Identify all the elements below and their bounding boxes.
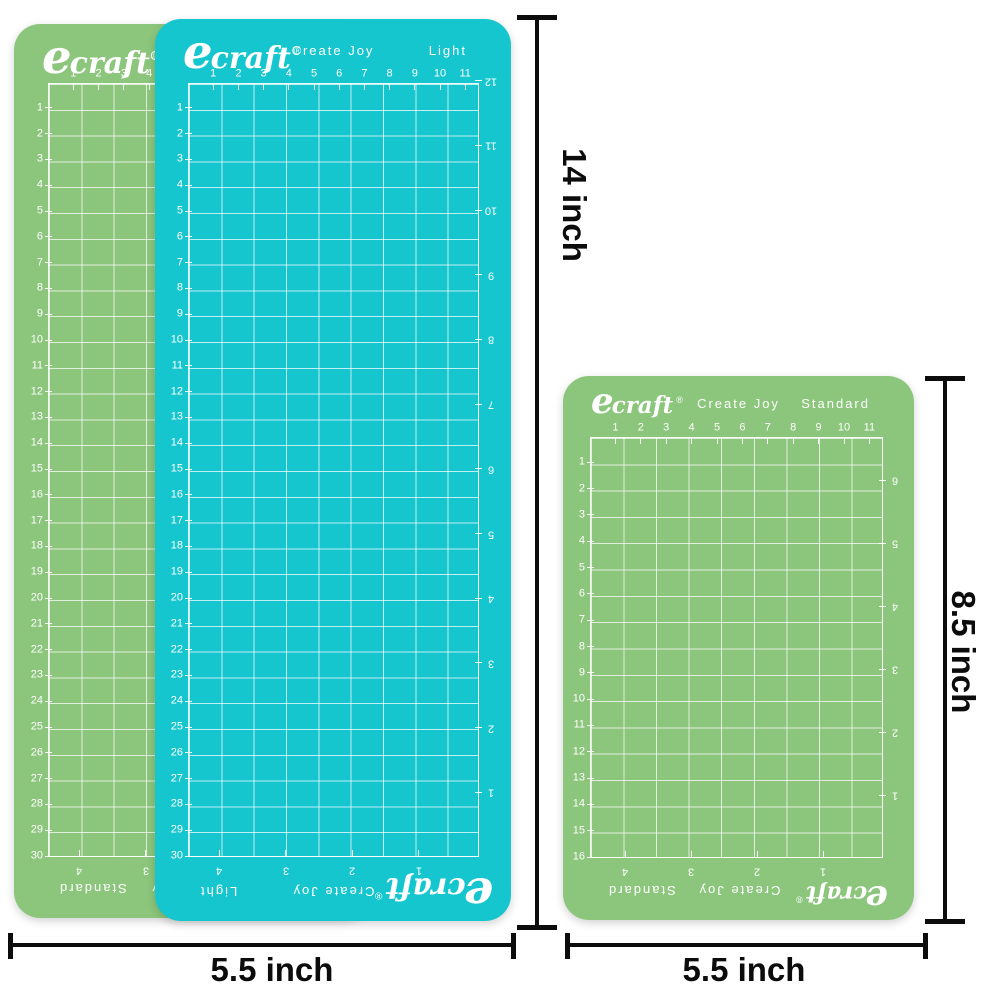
flipped-column-scale-label: 4 (76, 865, 82, 876)
variant-text: Light (429, 43, 467, 58)
dimension-line (567, 943, 927, 947)
row-scale-tick (185, 598, 192, 599)
dimension-cap (923, 933, 928, 959)
flipped-row-scale-label: 2 (488, 722, 494, 733)
column-scale-tick (414, 84, 415, 90)
row-scale-label: 30 (31, 851, 43, 862)
column-scale-tick (717, 438, 718, 444)
row-scale-label: 11 (574, 720, 585, 731)
row-scale-tick (587, 462, 594, 463)
measuring-grid (590, 437, 883, 858)
row-scale-label: 27 (31, 773, 43, 784)
column-scale-tick (314, 84, 315, 90)
column-scale-tick (767, 438, 768, 444)
flipped-row-scale-label: 10 (485, 205, 497, 216)
tagline-text-flipped: Create Joy (292, 884, 375, 899)
cutting-mat-teal: ecraft®Create JoyLight123456789101112345… (155, 19, 511, 921)
row-scale-label: 2 (37, 128, 43, 139)
flipped-column-scale-tick (691, 851, 692, 857)
flipped-row-scale-tick (879, 480, 886, 481)
row-scale-tick (587, 488, 594, 489)
flipped-row-scale-tick (475, 662, 482, 663)
row-scale-tick (185, 469, 192, 470)
row-scale-tick (45, 391, 52, 392)
row-scale-tick (45, 417, 52, 418)
row-scale-tick (45, 211, 52, 212)
flipped-row-scale-tick (475, 533, 482, 534)
column-scale-tick (793, 438, 794, 444)
row-scale-tick (587, 804, 594, 805)
row-scale-label: 26 (171, 747, 183, 758)
row-scale-label: 16 (171, 489, 183, 500)
flipped-row-scale-label: 9 (488, 269, 494, 280)
flipped-row-scale-tick (879, 606, 886, 607)
row-scale-label: 19 (171, 567, 183, 578)
column-scale-label: 2 (235, 69, 241, 80)
row-scale-label: 21 (171, 618, 183, 629)
row-scale-label: 8 (177, 283, 183, 294)
row-scale-tick (185, 546, 192, 547)
column-scale-tick (666, 438, 667, 444)
row-scale-label: 10 (171, 335, 183, 346)
row-scale-label: 17 (31, 515, 43, 526)
column-scale-tick (869, 438, 870, 444)
row-scale-label: 26 (31, 747, 43, 758)
row-scale-tick (45, 107, 52, 108)
row-scale-label: 18 (31, 541, 43, 552)
flipped-row-scale-tick (475, 404, 482, 405)
row-scale-tick (587, 620, 594, 621)
width-label-right-5-5-inch: 5.5 inch (664, 950, 824, 990)
flipped-column-scale-tick (625, 851, 626, 857)
brand-logo: ecraft® (591, 384, 683, 420)
flipped-column-scale-label: 3 (282, 865, 288, 876)
column-scale-label: 10 (434, 69, 446, 80)
row-scale-label: 10 (573, 694, 585, 705)
variant-text: Standard (801, 396, 870, 411)
row-scale-tick (45, 520, 52, 521)
flipped-row-scale-label: 7 (488, 399, 494, 410)
cutting-mat-green-right: ecraft®Create JoyStandard123456789101112… (563, 376, 914, 920)
flipped-row-scale-label: 11 (485, 140, 496, 151)
brand-initial: e (42, 29, 70, 84)
row-scale-label: 15 (31, 464, 43, 475)
row-scale-tick (185, 830, 192, 831)
flipped-row-scale-tick (475, 468, 482, 469)
row-scale-label: 24 (31, 696, 43, 707)
row-scale-label: 23 (171, 670, 183, 681)
row-scale-tick (185, 185, 192, 186)
row-scale-tick (45, 830, 52, 831)
row-scale-tick (185, 417, 192, 418)
row-scale-tick (587, 725, 594, 726)
dimension-cap (565, 933, 570, 959)
flipped-column-scale-label: 2 (349, 865, 355, 876)
row-scale-tick (45, 598, 52, 599)
column-scale-tick (640, 438, 641, 444)
flipped-row-scale-label: 3 (488, 657, 494, 668)
column-scale-label: 2 (638, 423, 644, 434)
column-scale-label: 5 (311, 69, 317, 80)
brand-logo: ecraft® (183, 29, 301, 76)
column-scale-label: 8 (387, 69, 393, 80)
row-scale-tick (185, 133, 192, 134)
row-scale-tick (45, 159, 52, 160)
row-scale-tick (587, 857, 594, 858)
column-scale-label: 9 (816, 423, 822, 434)
dimension-cap (925, 919, 965, 924)
measuring-grid (188, 83, 479, 857)
row-scale-label: 3 (177, 154, 183, 165)
column-scale-tick (238, 84, 239, 90)
row-scale-label: 17 (171, 515, 183, 526)
row-scale-label: 25 (31, 722, 43, 733)
column-scale-tick (213, 84, 214, 90)
column-scale-label: 3 (663, 423, 669, 434)
column-scale-label: 10 (838, 423, 850, 434)
variant-text-flipped: Light (199, 884, 237, 899)
column-scale-label: 2 (96, 69, 102, 80)
row-scale-tick (45, 778, 52, 779)
row-scale-tick (45, 804, 52, 805)
column-scale-label: 3 (261, 69, 267, 80)
brand-initial: e (183, 24, 211, 79)
row-scale-label: 25 (171, 722, 183, 733)
column-scale-label: 7 (765, 423, 771, 434)
flipped-row-scale-tick (475, 145, 482, 146)
row-scale-tick (587, 646, 594, 647)
row-scale-label: 29 (171, 825, 183, 836)
row-scale-label: 7 (37, 257, 43, 268)
row-scale-label: 9 (579, 667, 585, 678)
column-scale-tick (691, 438, 692, 444)
flipped-row-scale-tick (475, 727, 482, 728)
column-scale-tick (339, 84, 340, 90)
variant-text-flipped: Standard (607, 883, 676, 898)
brand-initial: e (591, 381, 612, 422)
flipped-row-scale-tick (475, 274, 482, 275)
row-scale-tick (185, 856, 192, 857)
column-scale-tick (288, 84, 289, 90)
row-scale-tick (45, 262, 52, 263)
flipped-column-scale-label: 4 (216, 865, 222, 876)
flipped-row-scale-tick (475, 792, 482, 793)
registered-trademark-icon: ® (796, 895, 803, 905)
dimension-cap (925, 376, 965, 381)
row-scale-label: 1 (579, 457, 585, 468)
row-scale-label: 20 (31, 593, 43, 604)
brand-initial: e (465, 867, 493, 922)
row-scale-tick (45, 752, 52, 753)
row-scale-label: 12 (573, 746, 585, 757)
row-scale-tick (185, 675, 192, 676)
row-scale-tick (185, 314, 192, 315)
row-scale-label: 8 (37, 283, 43, 294)
row-scale-tick (45, 443, 52, 444)
row-scale-tick (185, 262, 192, 263)
row-scale-tick (45, 185, 52, 186)
flipped-column-scale-tick (418, 850, 419, 856)
row-scale-label: 12 (171, 386, 183, 397)
row-scale-label: 22 (171, 644, 183, 655)
flipped-row-scale-label: 4 (488, 593, 494, 604)
row-scale-tick (45, 236, 52, 237)
column-scale-tick (389, 84, 390, 90)
column-scale-label: 6 (336, 69, 342, 80)
row-scale-tick (185, 391, 192, 392)
dimension-cap (511, 933, 516, 959)
row-scale-label: 27 (171, 773, 183, 784)
row-scale-label: 21 (31, 618, 43, 629)
flipped-column-scale-label: 2 (754, 866, 760, 877)
row-scale-tick (185, 288, 192, 289)
flipped-row-scale-tick (475, 598, 482, 599)
row-scale-tick (45, 675, 52, 676)
row-scale-label: 13 (31, 412, 43, 423)
registered-trademark-icon: ® (676, 395, 683, 405)
column-scale-label: 11 (864, 423, 875, 434)
row-scale-tick (587, 751, 594, 752)
column-scale-label: 5 (714, 423, 720, 434)
row-scale-label: 11 (172, 360, 183, 371)
row-scale-tick (45, 856, 52, 857)
row-scale-label: 29 (31, 825, 43, 836)
row-scale-tick (587, 593, 594, 594)
row-scale-tick (185, 107, 192, 108)
row-scale-tick (587, 541, 594, 542)
column-scale-tick (98, 84, 99, 90)
row-scale-label: 13 (573, 773, 585, 784)
row-scale-tick (587, 778, 594, 779)
row-scale-label: 28 (31, 799, 43, 810)
row-scale-label: 4 (579, 536, 585, 547)
flipped-row-scale-label: 6 (892, 475, 898, 486)
row-scale-tick (185, 159, 192, 160)
column-scale-tick (73, 84, 74, 90)
flipped-row-scale-tick (475, 210, 482, 211)
column-scale-label: 8 (790, 423, 796, 434)
column-scale-tick (149, 84, 150, 90)
width-label-left-5-5-inch: 5.5 inch (192, 950, 352, 990)
flipped-column-scale-label: 3 (688, 866, 694, 877)
row-scale-label: 14 (31, 438, 43, 449)
row-scale-tick (45, 727, 52, 728)
flipped-column-scale-tick (145, 850, 146, 856)
height-label-14-inch: 14 inch (554, 125, 594, 285)
row-scale-tick (587, 672, 594, 673)
row-scale-label: 2 (579, 483, 585, 494)
row-scale-tick (587, 699, 594, 700)
row-scale-label: 18 (171, 541, 183, 552)
row-scale-label: 7 (177, 257, 183, 268)
row-scale-label: 3 (579, 509, 585, 520)
row-scale-tick (45, 288, 52, 289)
row-scale-tick (45, 649, 52, 650)
row-scale-label: 7 (579, 615, 585, 626)
row-scale-label: 1 (37, 102, 43, 113)
row-scale-tick (185, 520, 192, 521)
row-scale-label: 13 (171, 412, 183, 423)
dimension-cap (517, 925, 557, 930)
row-scale-tick (185, 211, 192, 212)
row-scale-label: 22 (31, 644, 43, 655)
row-scale-label: 1 (177, 102, 183, 113)
row-scale-tick (185, 701, 192, 702)
row-scale-tick (45, 494, 52, 495)
row-scale-tick (185, 804, 192, 805)
row-scale-tick (45, 572, 52, 573)
flipped-row-scale-tick (879, 795, 886, 796)
brand-logo-flipped: ecraft® (375, 871, 493, 918)
row-scale-label: 5 (177, 206, 183, 217)
row-scale-label: 6 (177, 231, 183, 242)
row-scale-label: 8 (579, 641, 585, 652)
brand-logo-flipped: ecraft® (796, 880, 888, 916)
row-scale-tick (185, 236, 192, 237)
flipped-row-scale-tick (879, 669, 886, 670)
dimension-line (535, 17, 539, 928)
column-scale-tick (615, 438, 616, 444)
row-scale-label: 15 (171, 464, 183, 475)
column-scale-label: 1 (210, 69, 216, 80)
registered-trademark-icon: ® (375, 889, 382, 900)
row-scale-tick (587, 830, 594, 831)
flipped-column-scale-tick (823, 851, 824, 857)
row-scale-label: 2 (177, 128, 183, 139)
row-scale-label: 4 (177, 180, 183, 191)
row-scale-label: 9 (177, 309, 183, 320)
row-scale-label: 23 (31, 670, 43, 681)
flipped-column-scale-tick (219, 850, 220, 856)
row-scale-tick (185, 572, 192, 573)
row-scale-tick (185, 623, 192, 624)
row-scale-tick (587, 514, 594, 515)
column-scale-label: 7 (361, 69, 367, 80)
flipped-row-scale-label: 2 (892, 727, 898, 738)
row-scale-label: 12 (31, 386, 43, 397)
row-scale-label: 10 (31, 335, 43, 346)
row-scale-tick (45, 365, 52, 366)
flipped-column-scale-tick (757, 851, 758, 857)
row-scale-tick (185, 727, 192, 728)
row-scale-label: 24 (171, 696, 183, 707)
row-scale-label: 3 (37, 154, 43, 165)
row-scale-label: 5 (579, 562, 585, 573)
column-scale-label: 3 (121, 69, 127, 80)
flipped-row-scale-label: 5 (892, 538, 898, 549)
flipped-column-scale-label: 4 (622, 866, 628, 877)
tagline-text: Create Joy (697, 396, 780, 411)
row-scale-tick (185, 443, 192, 444)
flipped-row-scale-label: 1 (488, 787, 494, 798)
column-scale-tick (844, 438, 845, 444)
row-scale-tick (185, 494, 192, 495)
column-scale-label: 11 (459, 69, 470, 80)
column-scale-tick (818, 438, 819, 444)
tagline-text-flipped: Create Joy (697, 883, 780, 898)
height-label-8-5-inch: 8.5 inch (943, 572, 983, 732)
flipped-column-scale-label: 1 (820, 866, 826, 877)
column-scale-label: 9 (412, 69, 418, 80)
column-scale-label: 4 (286, 69, 292, 80)
row-scale-tick (45, 701, 52, 702)
row-scale-label: 16 (573, 852, 585, 863)
row-scale-label: 30 (171, 851, 183, 862)
row-scale-tick (185, 340, 192, 341)
column-scale-tick (123, 84, 124, 90)
row-scale-label: 6 (579, 588, 585, 599)
column-scale-tick (742, 438, 743, 444)
row-scale-tick (587, 567, 594, 568)
row-scale-tick (45, 340, 52, 341)
row-scale-label: 20 (171, 593, 183, 604)
row-scale-label: 11 (32, 360, 43, 371)
row-scale-label: 19 (31, 567, 43, 578)
row-scale-tick (45, 546, 52, 547)
flipped-row-scale-label: 12 (485, 75, 497, 86)
flipped-column-scale-tick (352, 850, 353, 856)
row-scale-tick (185, 365, 192, 366)
row-scale-tick (45, 469, 52, 470)
column-scale-label: 1 (612, 423, 618, 434)
column-scale-label: 1 (70, 69, 76, 80)
row-scale-tick (185, 752, 192, 753)
flipped-row-scale-label: 5 (488, 528, 494, 539)
column-scale-tick (440, 84, 441, 90)
variant-text-flipped: Standard (58, 881, 127, 896)
row-scale-tick (45, 133, 52, 134)
row-scale-tick (185, 649, 192, 650)
row-scale-tick (45, 314, 52, 315)
dimension-line (10, 943, 514, 947)
column-scale-label: 4 (689, 423, 695, 434)
flipped-row-scale-tick (879, 732, 886, 733)
flipped-row-scale-label: 6 (488, 463, 494, 474)
flipped-column-scale-label: 3 (142, 865, 148, 876)
brand-initial: e (867, 878, 888, 919)
row-scale-label: 16 (31, 489, 43, 500)
row-scale-tick (185, 778, 192, 779)
row-scale-label: 14 (171, 438, 183, 449)
flipped-row-scale-tick (475, 80, 482, 81)
row-scale-label: 5 (37, 206, 43, 217)
tagline-text: Create Joy (292, 43, 375, 58)
dimension-cap (8, 933, 13, 959)
column-scale-label: 6 (739, 423, 745, 434)
column-scale-tick (465, 84, 466, 90)
row-scale-tick (45, 623, 52, 624)
row-scale-label: 4 (37, 180, 43, 191)
flipped-column-scale-tick (79, 850, 80, 856)
row-scale-label: 28 (171, 799, 183, 810)
flipped-column-scale-tick (285, 850, 286, 856)
flipped-row-scale-label: 8 (488, 334, 494, 345)
dimension-cap (517, 15, 557, 20)
flipped-row-scale-label: 3 (892, 664, 898, 675)
row-scale-label: 14 (573, 799, 585, 810)
flipped-row-scale-label: 4 (892, 601, 898, 612)
column-scale-tick (263, 84, 264, 90)
column-scale-tick (364, 84, 365, 90)
row-scale-label: 15 (573, 825, 585, 836)
column-scale-label: 4 (146, 69, 152, 80)
row-scale-label: 6 (37, 231, 43, 242)
flipped-row-scale-label: 1 (892, 790, 898, 801)
flipped-row-scale-tick (475, 339, 482, 340)
flipped-row-scale-tick (879, 543, 886, 544)
row-scale-label: 9 (37, 309, 43, 320)
